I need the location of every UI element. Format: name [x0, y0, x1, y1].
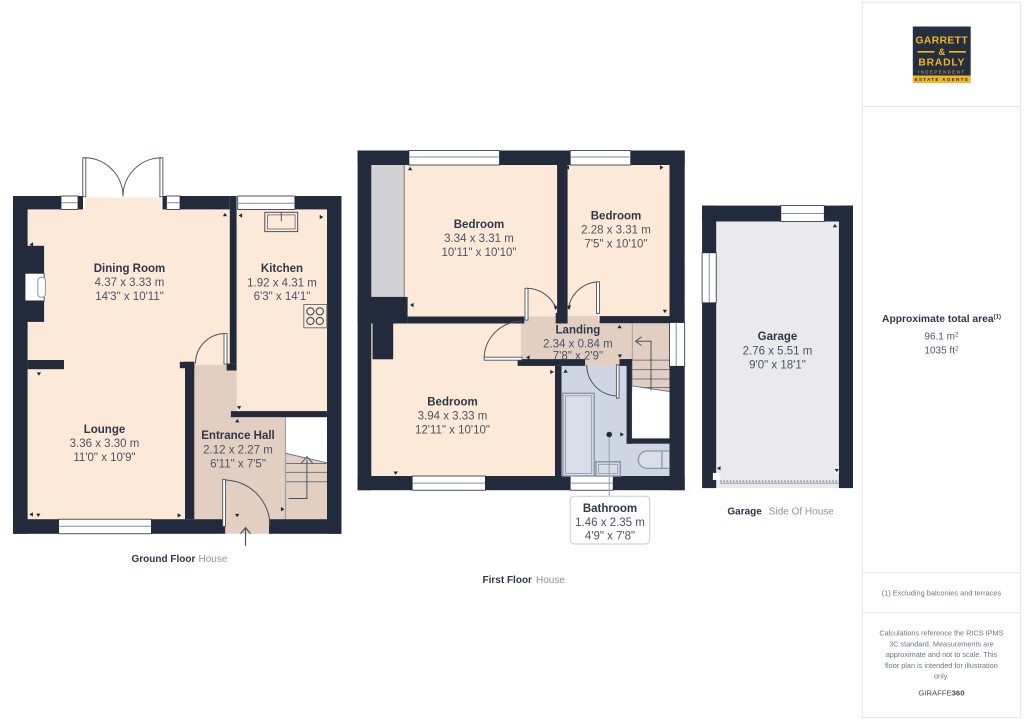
- svg-text:INDEPENDENT: INDEPENDENT: [918, 69, 966, 74]
- svg-text:11'0" x 10'9": 11'0" x 10'9": [73, 452, 135, 464]
- svg-text:Ground Floor: Ground Floor: [132, 554, 196, 565]
- svg-text:Approximate total area(1): Approximate total area(1): [882, 314, 1001, 325]
- svg-text:GARRETT: GARRETT: [916, 35, 969, 46]
- svg-text:House: House: [199, 554, 228, 565]
- svg-text:Side Of House: Side Of House: [769, 506, 834, 517]
- svg-text:3.36 x 3.30 m: 3.36 x 3.30 m: [70, 438, 140, 450]
- svg-text:approximate and not to scale.: approximate and not to scale. This: [886, 650, 998, 659]
- svg-text:Bathroom: Bathroom: [583, 503, 637, 515]
- svg-text:3.34 x 3.31 m: 3.34 x 3.31 m: [444, 233, 514, 245]
- svg-text:ESTATE AGENTS: ESTATE AGENTS: [915, 77, 970, 82]
- svg-text:(1) Excluding balconies and te: (1) Excluding balconies and terraces: [882, 588, 1002, 597]
- svg-text:1.46 x 2.35 m: 1.46 x 2.35 m: [575, 517, 645, 529]
- svg-text:GIRAFFE360: GIRAFFE360: [918, 688, 964, 697]
- svg-text:14'3" x 10'11": 14'3" x 10'11": [95, 291, 164, 303]
- svg-text:4'9" x 7'8": 4'9" x 7'8": [585, 530, 635, 542]
- svg-text:Kitchen: Kitchen: [261, 263, 303, 275]
- svg-text:Calculations reference the RIC: Calculations reference the RICS IPMS: [879, 629, 1003, 638]
- svg-text:6'3" x 14'1": 6'3" x 14'1": [254, 291, 311, 303]
- svg-text:BRADLY: BRADLY: [918, 57, 965, 68]
- svg-text:Landing: Landing: [556, 325, 601, 337]
- svg-text:Dining Room: Dining Room: [94, 263, 166, 275]
- svg-text:4.37 x 3.33 m: 4.37 x 3.33 m: [95, 277, 165, 289]
- svg-text:Garage: Garage: [727, 506, 762, 517]
- svg-text:9'0" x 18'1": 9'0" x 18'1": [749, 360, 806, 372]
- svg-text:2.34 x 0.84 m: 2.34 x 0.84 m: [543, 338, 613, 350]
- svg-text:&: &: [938, 47, 945, 58]
- svg-text:Bedroom: Bedroom: [591, 211, 641, 223]
- svg-text:only.: only.: [934, 672, 949, 681]
- svg-text:floor plan is intended for ill: floor plan is intended for illustration: [885, 661, 998, 670]
- svg-text:1035 ft2: 1035 ft2: [924, 345, 959, 356]
- svg-text:2.76 x 5.51 m: 2.76 x 5.51 m: [743, 346, 813, 358]
- svg-text:3.94 x 3.33 m: 3.94 x 3.33 m: [418, 411, 488, 423]
- svg-text:1.92 x 4.31 m: 1.92 x 4.31 m: [247, 277, 317, 289]
- svg-text:2.12 x 2.27 m: 2.12 x 2.27 m: [203, 444, 273, 456]
- svg-text:96.1 m2: 96.1 m2: [924, 331, 959, 342]
- svg-text:Bedroom: Bedroom: [454, 219, 504, 231]
- svg-text:6'11" x 7'5": 6'11" x 7'5": [210, 458, 266, 470]
- svg-text:Entrance Hall: Entrance Hall: [201, 430, 275, 442]
- svg-text:Bedroom: Bedroom: [427, 397, 477, 409]
- svg-text:House: House: [536, 575, 565, 586]
- svg-text:7'5" x 10'10": 7'5" x 10'10": [584, 238, 647, 250]
- svg-text:7'8" x 2'9": 7'8" x 2'9": [553, 351, 603, 363]
- svg-text:12'11" x 10'10": 12'11" x 10'10": [415, 424, 490, 436]
- svg-text:First Floor: First Floor: [483, 575, 533, 586]
- svg-text:2.28 x 3.31 m: 2.28 x 3.31 m: [581, 225, 651, 237]
- svg-text:10'11" x 10'10": 10'11" x 10'10": [441, 247, 516, 259]
- svg-text:Lounge: Lounge: [84, 424, 126, 436]
- svg-text:Garage: Garage: [758, 331, 798, 343]
- svg-text:3C standard. Measurements are: 3C standard. Measurements are: [889, 639, 994, 648]
